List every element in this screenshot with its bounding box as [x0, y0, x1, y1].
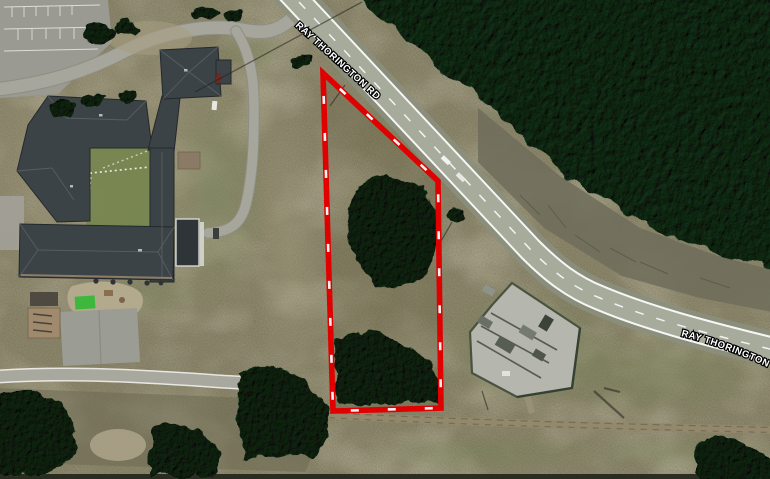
shed-roof	[30, 292, 58, 306]
east-annex-roof	[176, 219, 199, 266]
south-road	[0, 374, 260, 383]
small-annex-roof	[178, 152, 200, 169]
courtyard-lawn	[86, 144, 154, 228]
playground-canopy	[75, 295, 96, 309]
satellite-map[interactable]: RAY THORINGTON RD RAY THORINGTON RD	[0, 0, 770, 479]
dumpster	[213, 228, 219, 239]
car	[212, 101, 218, 110]
